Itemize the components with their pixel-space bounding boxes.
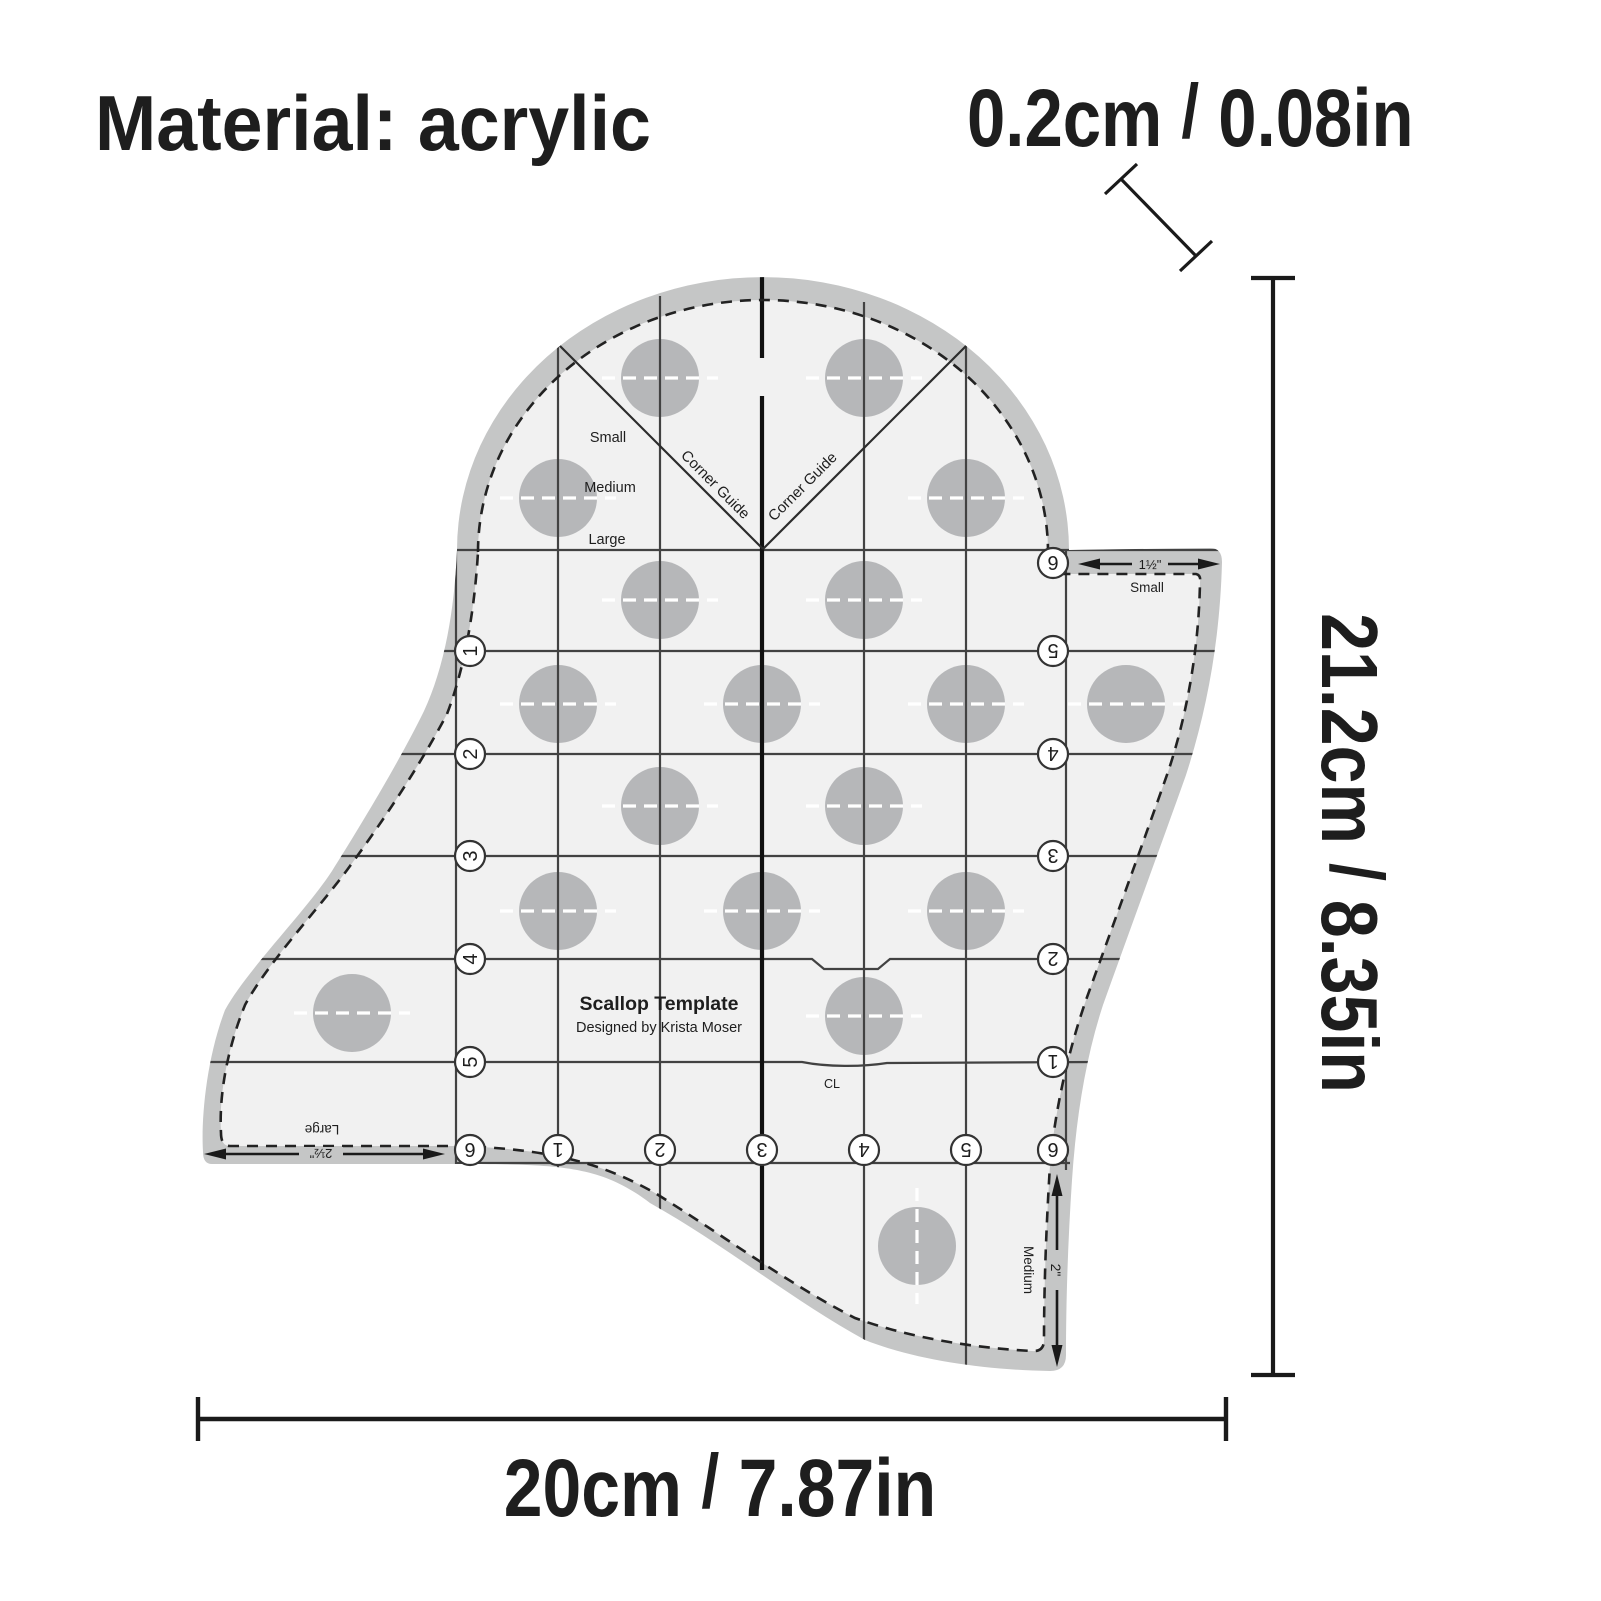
svg-text:5: 5 [1047,639,1058,661]
svg-text:Scallop Template: Scallop Template [580,993,739,1015]
svg-text:2: 2 [460,748,482,759]
svg-text:2": 2" [1048,1264,1064,1277]
svg-text:0.2cm / 0.08in: 0.2cm / 0.08in [967,68,1414,165]
svg-text:Large: Large [588,532,625,548]
svg-text:1: 1 [552,1138,563,1160]
svg-text:Medium: Medium [584,480,636,496]
svg-text:2: 2 [1047,947,1058,969]
svg-text:6: 6 [1047,551,1058,573]
svg-text:5: 5 [460,1056,482,1067]
svg-text:2: 2 [654,1138,665,1160]
svg-text:3: 3 [756,1138,767,1160]
svg-text:4: 4 [1047,742,1058,764]
svg-text:21.2cm / 8.35in: 21.2cm / 8.35in [1305,613,1400,1093]
svg-text:Small: Small [1130,580,1164,595]
svg-text:1: 1 [1047,1050,1058,1072]
svg-text:2½": 2½" [309,1146,332,1161]
svg-text:Material: acrylic: Material: acrylic [95,80,651,167]
svg-text:1½": 1½" [1139,557,1162,572]
svg-text:Medium: Medium [1021,1246,1036,1294]
svg-text:5: 5 [960,1138,971,1160]
svg-text:Large: Large [305,1122,340,1137]
svg-text:Small: Small [590,430,626,446]
svg-text:Designed by Krista Moser: Designed by Krista Moser [576,1020,742,1036]
svg-text:1: 1 [460,645,482,656]
svg-text:4: 4 [858,1138,869,1160]
svg-text:3: 3 [460,850,482,861]
svg-text:6: 6 [1047,1138,1058,1160]
svg-text:3: 3 [1047,844,1058,866]
svg-text:4: 4 [460,953,482,964]
svg-text:20cm / 7.87in: 20cm / 7.87in [504,1438,936,1534]
svg-text:CL: CL [824,1077,840,1091]
svg-text:6: 6 [464,1138,475,1160]
